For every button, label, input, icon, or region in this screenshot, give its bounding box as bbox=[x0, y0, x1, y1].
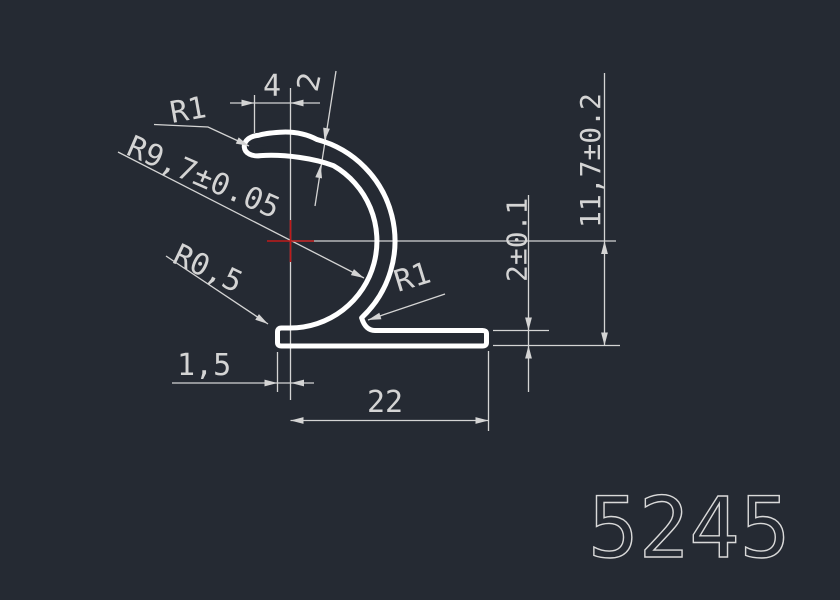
profile-outline bbox=[244, 132, 486, 346]
arrowhead bbox=[242, 100, 255, 107]
center-mark bbox=[267, 220, 314, 262]
arrowhead bbox=[601, 241, 608, 254]
arrowhead bbox=[255, 314, 268, 324]
technical-drawing: 4 2 R1 R9,7±0.05 R0,5 1,5 22 R1 2±0.1 11… bbox=[0, 0, 840, 600]
dim-text-lip-wall-thickness: 2 bbox=[291, 70, 329, 95]
dim-text-inner-corner-radius: R1 bbox=[390, 256, 435, 300]
arrowhead bbox=[525, 318, 532, 331]
dim-text-top-width: 4 bbox=[263, 69, 281, 104]
arrowhead bbox=[476, 417, 489, 424]
arrowhead bbox=[323, 128, 330, 141]
dim-text-flange-thickness: 2±0.1 bbox=[501, 198, 534, 282]
dim-text-flange-end-radius: R0,5 bbox=[168, 238, 248, 301]
arrowhead bbox=[601, 333, 608, 346]
dim-text-flange-length: 22 bbox=[367, 385, 403, 420]
dim-text-flange-left-offset: 1,5 bbox=[177, 348, 231, 383]
profile-geometry bbox=[244, 132, 486, 346]
arrowhead bbox=[368, 313, 381, 320]
cad-drawing-canvas: 4 2 R1 R9,7±0.05 R0,5 1,5 22 R1 2±0.1 11… bbox=[0, 0, 840, 600]
profile-tip-curl-slit bbox=[253, 143, 267, 148]
arrowhead bbox=[265, 380, 278, 387]
dimension-texts: 4 2 R1 R9,7±0.05 R0,5 1,5 22 R1 2±0.1 11… bbox=[122, 69, 607, 420]
dim-text-main-radius: R9,7±0.05 bbox=[122, 129, 285, 226]
arrowhead bbox=[291, 380, 304, 387]
part-number: 5245 bbox=[588, 479, 790, 577]
arrowhead bbox=[291, 100, 304, 107]
dim-text-lip-tip-radius: R1 bbox=[167, 90, 209, 131]
arrowhead bbox=[351, 269, 364, 278]
arrowhead bbox=[291, 417, 304, 424]
dim-text-overall-height: 11,7±0.2 bbox=[574, 93, 607, 228]
arrowhead bbox=[525, 346, 532, 359]
construction-lines bbox=[255, 88, 621, 431]
